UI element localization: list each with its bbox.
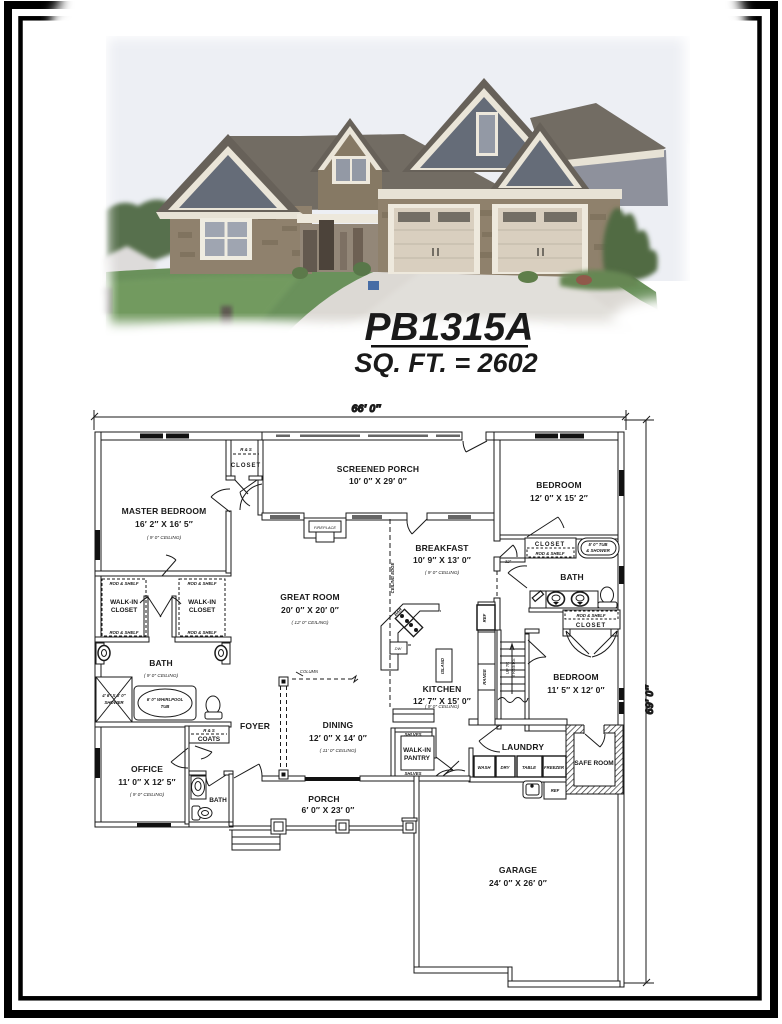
svg-text:REF: REF: [551, 788, 560, 793]
svg-text:GARAGE: GARAGE: [499, 865, 537, 875]
svg-text:PORCH: PORCH: [308, 794, 339, 804]
svg-text:WALK-IN: WALK-IN: [403, 747, 431, 754]
svg-text:( 12′ 0″ CEILING): ( 12′ 0″ CEILING): [292, 620, 329, 626]
svg-text:WALK-IN: WALK-IN: [188, 599, 216, 606]
svg-text:COATS: COATS: [198, 736, 221, 743]
svg-text:MASTER BEDROOM: MASTER BEDROOM: [122, 506, 207, 516]
svg-text:4′ 6″ X 6′ 0″: 4′ 6″ X 6′ 0″: [101, 693, 126, 698]
svg-text:DRY: DRY: [501, 765, 511, 770]
svg-text:SQ. FT. = 2602: SQ. FT. = 2602: [354, 348, 537, 378]
svg-text:16′ 2″ X 16′ 5″: 16′ 2″ X 16′ 5″: [135, 519, 193, 529]
svg-text:24′ 0″ X 26′ 0″: 24′ 0″ X 26′ 0″: [489, 878, 547, 888]
svg-text:ROD & SHELF: ROD & SHELF: [109, 630, 138, 635]
svg-text:10′ 0″ X 29′ 0″: 10′ 0″ X 29′ 0″: [349, 476, 407, 486]
svg-text:ROD & SHELF: ROD & SHELF: [187, 581, 216, 586]
svg-text:CEILING EDGE: CEILING EDGE: [390, 562, 395, 593]
svg-text:ROD & SHELF: ROD & SHELF: [187, 630, 216, 635]
svg-text:( 9′ 0″ CEILING): ( 9′ 0″ CEILING): [147, 535, 182, 541]
svg-text:WALK-IN: WALK-IN: [110, 599, 138, 606]
svg-text:BEDROOM: BEDROOM: [536, 480, 581, 490]
svg-text:BREAKFAST: BREAKFAST: [415, 543, 469, 553]
svg-text:32″: 32″: [505, 559, 512, 564]
svg-text:( 11′ 0″ CEILING): ( 11′ 0″ CEILING): [320, 748, 357, 754]
svg-text:SCREENED PORCH: SCREENED PORCH: [337, 464, 419, 474]
svg-text:( 9′ 0″ CEILING): ( 9′ 0″ CEILING): [425, 704, 460, 710]
svg-text:12′ 0″ X 15′ 2″: 12′ 0″ X 15′ 2″: [530, 493, 588, 503]
svg-text:TABLE: TABLE: [522, 765, 536, 770]
svg-text:DINING: DINING: [323, 720, 354, 730]
svg-text:FIREPLACE: FIREPLACE: [314, 525, 337, 530]
svg-text:11′ 5″ X 12′ 0″: 11′ 5″ X 12′ 0″: [547, 685, 604, 695]
svg-text:5′ 0″ TUB: 5′ 0″ TUB: [588, 542, 607, 547]
svg-text:GREAT ROOM: GREAT ROOM: [280, 592, 339, 602]
svg-text:PANTRY: PANTRY: [404, 755, 431, 762]
svg-text:SHLVES: SHLVES: [405, 771, 422, 776]
svg-text:8 RISERS: 8 RISERS: [511, 658, 516, 677]
svg-text:R & S: R & S: [240, 447, 252, 452]
svg-text:BEDROOM: BEDROOM: [553, 672, 598, 682]
svg-text:69′ 0″: 69′ 0″: [644, 685, 656, 715]
svg-text:CLOSET: CLOSET: [576, 623, 606, 629]
svg-text:12′ 0″ X 14′ 0″: 12′ 0″ X 14′ 0″: [309, 733, 367, 743]
svg-text:6′ 0″ WHIRLPOOL: 6′ 0″ WHIRLPOOL: [147, 697, 184, 702]
svg-text:WASH: WASH: [478, 765, 492, 770]
svg-text:BATH: BATH: [209, 797, 227, 804]
svg-text:SHLVES: SHLVES: [405, 732, 422, 737]
svg-text:CLOSET: CLOSET: [189, 607, 215, 614]
svg-text:11′ 0″ X 12′ 5″: 11′ 0″ X 12′ 5″: [118, 777, 175, 787]
svg-text:20′ 0″ X 20′ 0″: 20′ 0″ X 20′ 0″: [281, 605, 339, 615]
svg-text:& SHOWER: & SHOWER: [586, 548, 611, 553]
svg-text:FOYER: FOYER: [240, 721, 270, 731]
svg-text:R & S: R & S: [203, 728, 215, 733]
svg-text:CLOSET: CLOSET: [535, 542, 565, 548]
svg-text:BATH: BATH: [149, 658, 173, 668]
svg-text:PB1315A: PB1315A: [364, 306, 533, 349]
svg-text:LAUNDRY: LAUNDRY: [502, 742, 544, 752]
svg-text:OFFICE: OFFICE: [131, 764, 163, 774]
svg-text:TUB: TUB: [161, 704, 170, 709]
svg-text:ROD & SHELF: ROD & SHELF: [576, 613, 605, 618]
svg-text:KITCHEN: KITCHEN: [423, 684, 462, 694]
svg-text:FREEZER: FREEZER: [544, 765, 565, 770]
svg-text:ROD & SHELF: ROD & SHELF: [109, 581, 138, 586]
svg-text:SAFE ROOM: SAFE ROOM: [574, 760, 613, 767]
svg-text:( 9′ 0″ CEILING): ( 9′ 0″ CEILING): [425, 570, 460, 576]
svg-text:66′ 0″: 66′ 0″: [351, 403, 381, 415]
svg-text:UP 7R: UP 7R: [505, 662, 510, 674]
svg-text:REF: REF: [482, 613, 487, 622]
svg-text:CLOSET: CLOSET: [231, 463, 261, 469]
svg-text:COLUMN: COLUMN: [300, 669, 319, 674]
svg-text:( 9′ 0″ CEILING): ( 9′ 0″ CEILING): [144, 673, 179, 679]
svg-text:10′ 9″ X 13′ 0″: 10′ 9″ X 13′ 0″: [413, 555, 471, 565]
svg-text:CLOSET: CLOSET: [111, 607, 137, 614]
svg-text:SHOWER: SHOWER: [104, 700, 124, 705]
svg-text:( 9′ 0″ CEILING): ( 9′ 0″ CEILING): [130, 792, 165, 798]
svg-text:ISLAND: ISLAND: [440, 658, 445, 674]
svg-text:BATH: BATH: [560, 572, 584, 582]
svg-text:ROD & SHELF: ROD & SHELF: [535, 551, 564, 556]
svg-text:RANGE: RANGE: [482, 669, 487, 685]
svg-text:6′ 0″ X 23′ 0″: 6′ 0″ X 23′ 0″: [301, 805, 354, 815]
